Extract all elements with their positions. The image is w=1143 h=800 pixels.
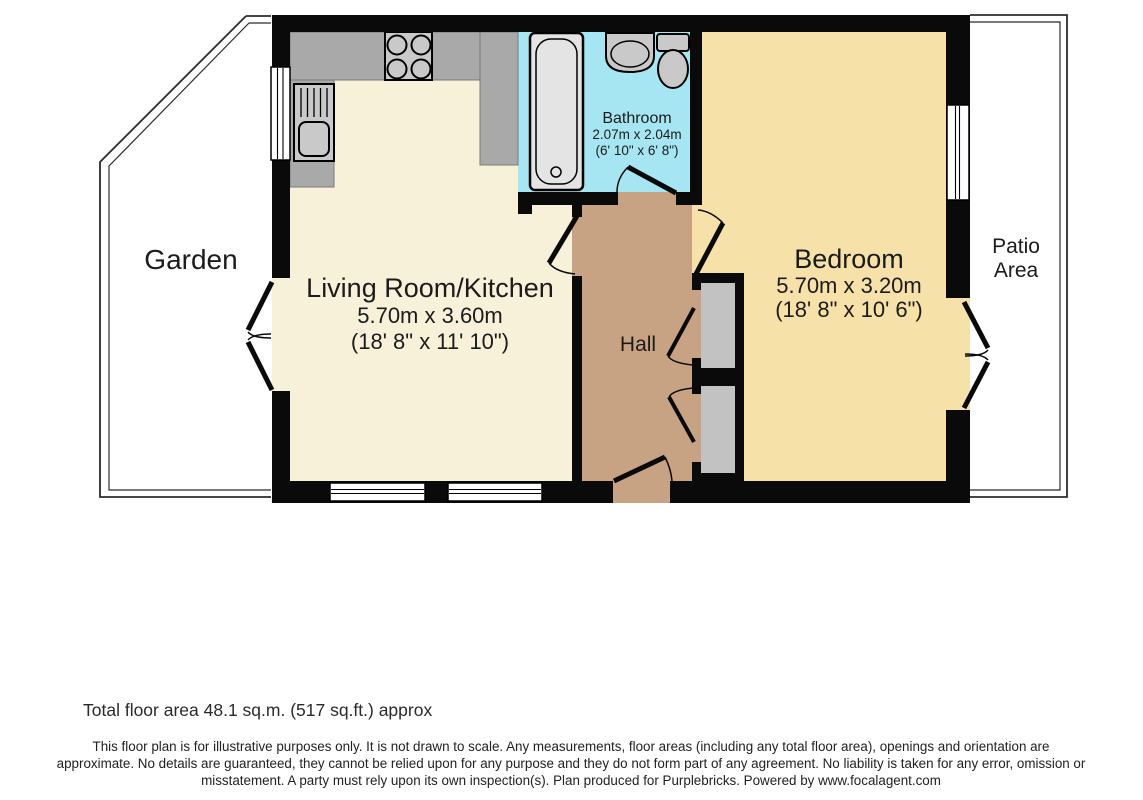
hob [385, 32, 432, 80]
hall-name: Hall [620, 333, 656, 356]
floor-plan: Garden Patio Area [0, 0, 1143, 620]
total-floor-area: Total floor area 48.1 sq.m. (517 sq.ft.)… [83, 700, 432, 721]
disclaimer-text: This floor plan is for illustrative purp… [56, 738, 1086, 789]
cupboard-2-opening [692, 394, 701, 462]
wall-bathroom-bottom [518, 192, 618, 205]
cupboard-1-opening [692, 290, 701, 358]
floorplan-page: Garden Patio Area [0, 0, 1143, 800]
hob-burner [412, 60, 431, 79]
toilet-bowl [658, 50, 688, 88]
living-room-dims-metric: 5.70m x 3.60m [357, 303, 503, 328]
patio-label-line2: Area [994, 259, 1039, 282]
kitchen-sink [294, 84, 334, 161]
garden-door-leaf [248, 342, 272, 390]
living-room-name: Living Room/Kitchen [306, 273, 554, 303]
living-window-2 [448, 483, 542, 501]
garden-label: Garden [144, 244, 237, 275]
bathroom-name: Bathroom [602, 110, 671, 127]
living-room-dims-imperial: (18' 8" x 11' 10") [351, 329, 509, 354]
sink-basin [299, 122, 329, 156]
bedroom-dims-imperial: (18' 8" x 10' 6") [775, 297, 923, 322]
bathroom-dims-imperial: (6' 10" x 6' 8") [595, 143, 678, 158]
hob-burner [388, 36, 407, 55]
wall-living-hall-lower [572, 276, 582, 482]
wall-living-hall-stub [572, 199, 582, 217]
kitchen-window [271, 67, 290, 160]
garden-doors-opening [272, 278, 290, 391]
living-window-1 [330, 483, 425, 501]
hob-burner [388, 60, 407, 79]
garden-door-leaf [248, 282, 272, 330]
bedroom-dims-metric: 5.70m x 3.20m [776, 273, 922, 298]
patio-area: Patio Area [970, 15, 1067, 497]
patio-label-line1: Patio [992, 235, 1040, 258]
bedroom-window [947, 105, 969, 200]
wall-top [272, 15, 970, 32]
bathroom-dims-metric: 2.07m x 2.04m [592, 127, 681, 142]
kitchen-tall-unit [480, 32, 518, 165]
wall-bathroom-stub-left [518, 192, 532, 214]
wall-bathroom-stub-right [676, 192, 702, 205]
storage-cupboard-1 [701, 283, 735, 368]
hob-burner [412, 36, 431, 55]
toilet-cistern [657, 34, 689, 51]
bathroom-door-opening [618, 192, 676, 205]
washbasin [606, 33, 654, 72]
bedroom-name: Bedroom [794, 244, 904, 274]
storage-cupboard-2 [701, 386, 735, 473]
entrance-opening [613, 481, 670, 503]
wall-right [946, 15, 970, 503]
garden-area: Garden [100, 16, 271, 497]
wall-bathroom-bedroom [690, 15, 702, 205]
